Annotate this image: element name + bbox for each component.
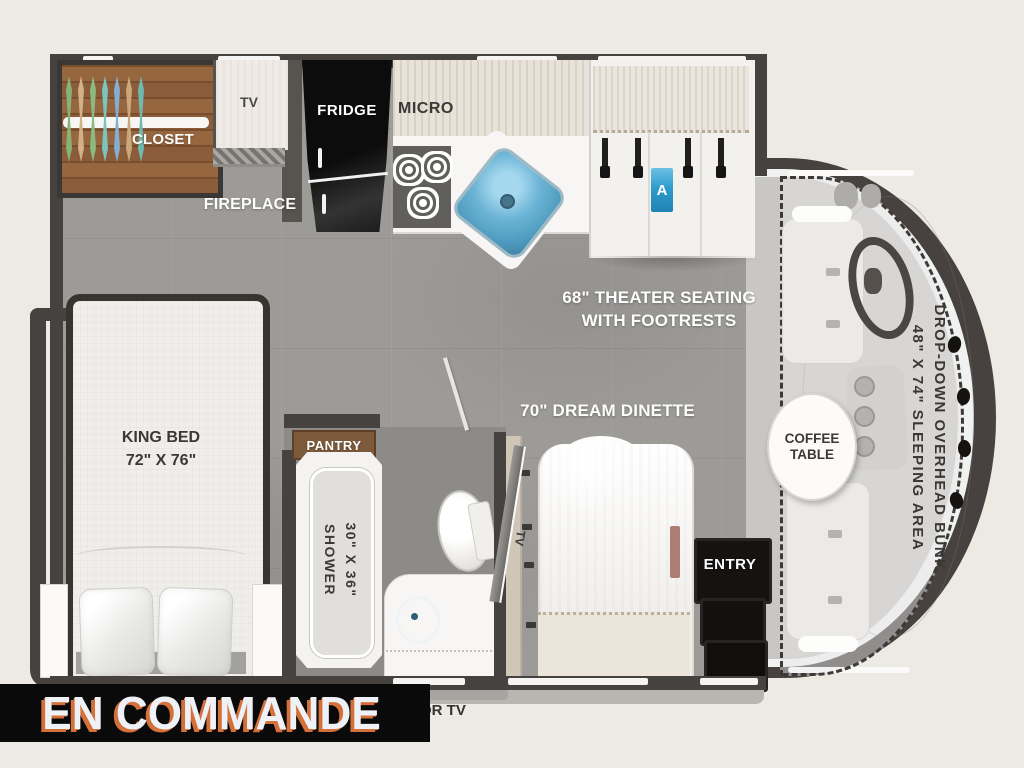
right-wall — [753, 54, 767, 176]
bunk-label: DROP-DOWN OVERHEAD BUNK 48" X 74" SLEEPI… — [906, 228, 950, 648]
panel-seam — [648, 132, 650, 256]
coffee-table-label: COFFEE TABLE — [785, 431, 840, 463]
closet-label: CLOSET — [118, 131, 208, 148]
hanging-clothes — [64, 76, 152, 162]
seat-belt-buckle — [683, 166, 693, 178]
armrest-mark — [826, 268, 840, 276]
armrest-mark — [826, 320, 840, 328]
bed-slideout-wall — [30, 308, 70, 321]
clothes-item — [124, 76, 134, 162]
sink-drain — [411, 613, 418, 620]
entry-trim — [670, 526, 680, 578]
clothes-item — [112, 76, 122, 162]
cooktop — [393, 146, 451, 228]
wall-window-mark — [700, 678, 758, 685]
pillow — [156, 587, 233, 678]
floor-shadow — [585, 256, 761, 272]
driver-headrest — [792, 206, 852, 222]
cup-holder — [854, 376, 875, 397]
coffee-table: COFFEE TABLE — [767, 393, 857, 501]
fireplace-label: FIREPLACE — [200, 196, 300, 214]
bathroom-wall — [282, 450, 296, 678]
steering-hub — [864, 268, 882, 294]
cup-holder — [854, 436, 875, 457]
burner — [433, 163, 441, 171]
seat-belt — [685, 138, 691, 168]
dinette-label: 70" DREAM DINETTE — [495, 401, 720, 421]
seat-belt — [602, 138, 608, 168]
clothes-item — [76, 76, 86, 162]
theater-backrest — [593, 66, 749, 133]
fridge-label: FRIDGE — [312, 102, 382, 119]
theater-seating-label: 68" THEATER SEATING WITH FOOTRESTS — [548, 286, 770, 332]
status-banner-text: EN COMMANDE — [0, 686, 381, 740]
king-bed-label: KING BED 72" X 76" — [86, 426, 236, 472]
clothes-item — [88, 76, 98, 162]
passenger-seat — [786, 482, 870, 640]
clothes-item — [100, 76, 110, 162]
clothes-item — [136, 76, 146, 162]
option-tag-a: A — [651, 168, 673, 212]
nightstand — [252, 584, 284, 678]
fridge-handle — [322, 194, 326, 214]
rv-floor-plan: COFFEE TABLE DROP-DOWN OVERHEAD BUNK 48"… — [0, 0, 1024, 768]
seat-belt — [718, 138, 724, 168]
burner — [405, 166, 413, 174]
burner — [419, 199, 427, 207]
vanity-seam — [386, 650, 504, 652]
seat-belt — [635, 138, 641, 168]
tv-mount-clip — [526, 622, 536, 628]
nightstand — [40, 584, 68, 678]
sink-drain — [500, 194, 515, 209]
sun-visor — [861, 184, 881, 208]
seat-belt-buckle — [633, 166, 643, 178]
armrest-mark — [828, 596, 842, 604]
blanket-fold — [76, 546, 246, 566]
wall-window-mark — [508, 678, 648, 685]
tv-label: TV — [221, 94, 277, 110]
entry-step — [700, 598, 766, 646]
panel-seam — [700, 132, 702, 256]
seat-belt-buckle — [716, 166, 726, 178]
cup-holder — [854, 406, 875, 427]
armrest-mark — [828, 530, 842, 538]
pillow — [78, 587, 155, 678]
seat-belt-buckle — [600, 166, 610, 178]
microwave-label: MICRO — [398, 100, 468, 118]
fridge — [302, 60, 392, 232]
status-banner: EN COMMANDE — [0, 684, 430, 742]
fridge-handle — [318, 148, 322, 168]
entry-label: ENTRY — [696, 556, 764, 573]
passenger-headrest — [798, 636, 858, 652]
or-tv-label: OR TV — [420, 702, 500, 719]
clothes-item — [64, 76, 74, 162]
tv-mount-clip — [524, 562, 534, 568]
fireplace-unit — [213, 148, 285, 167]
